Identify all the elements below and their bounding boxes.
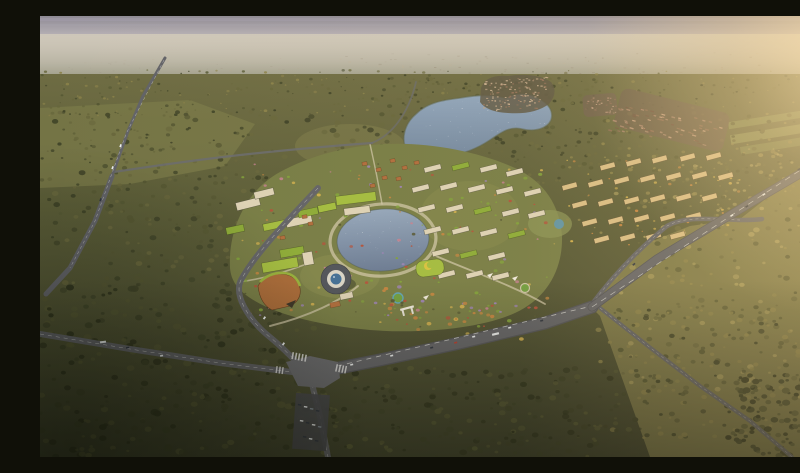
- vignette: [40, 16, 800, 457]
- aerial-rendering: [40, 16, 800, 457]
- atmosphere: [40, 16, 800, 457]
